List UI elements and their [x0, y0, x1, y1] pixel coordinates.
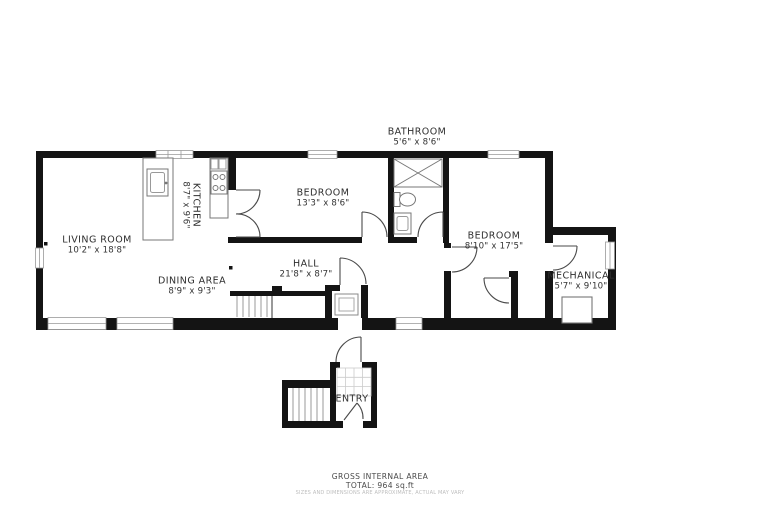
window-mechanical-right	[606, 242, 615, 269]
room-label-bathroom: BATHROOM 5'6" x 8'6"	[388, 127, 447, 148]
door-entry-inner	[336, 337, 361, 362]
door-kitchen-double	[236, 190, 260, 237]
stairs-entry	[293, 388, 323, 421]
room-label-entry: ENTRY	[336, 394, 369, 405]
window-living-bottom-2	[117, 318, 173, 330]
room-name: BATHROOM	[388, 127, 447, 138]
room-dims: 5'6" x 8'6"	[388, 138, 447, 148]
room-name: LIVING ROOM	[62, 235, 132, 246]
room-dims: 8'9" x 9'3"	[158, 287, 226, 297]
window-bedroom1	[308, 151, 337, 159]
bathroom-fixtures	[394, 159, 442, 234]
floor-plan: BATHROOM 5'6" x 8'6" LIVING ROOM 10'2" x…	[0, 0, 760, 505]
room-name: KITCHEN	[191, 181, 202, 228]
window-living-bottom-1	[48, 318, 106, 330]
room-name: HALL	[280, 259, 333, 270]
total-area-value: TOTAL: 964 sq.ft	[296, 482, 465, 491]
room-dims: 13'3" x 8'6"	[297, 199, 350, 209]
stairs-basement	[237, 296, 272, 318]
window-kitchen	[156, 151, 193, 159]
room-dims: 10'2" x 18'8"	[62, 246, 132, 256]
door-bedroom2-closet	[484, 278, 509, 303]
room-name: ENTRY	[336, 394, 369, 405]
window-hall-bottom	[396, 318, 422, 330]
room-dims: 21'8" x 8'7"	[280, 270, 333, 280]
room-label-living-room: LIVING ROOM 10'2" x 18'8"	[62, 235, 132, 256]
room-dims: 8'7" x 9'6"	[181, 181, 191, 228]
room-name: BEDROOM	[297, 188, 350, 199]
kitchen-cabinet	[219, 159, 226, 169]
entry-tile-grid	[337, 368, 371, 396]
room-label-kitchen: KITCHEN 8'7" x 9'6"	[181, 181, 202, 228]
room-name: BEDROOM	[465, 231, 524, 242]
room-label-hall: HALL 21'8" x 8'7"	[280, 259, 333, 280]
footer-area-summary: GROSS INTERNAL AREA TOTAL: 964 sq.ft SIZ…	[296, 473, 465, 497]
room-label-bedroom-2: BEDROOM 8'10" x 17'5"	[465, 231, 524, 252]
room-label-bedroom-1: BEDROOM 13'3" x 8'6"	[297, 188, 350, 209]
stove	[211, 171, 227, 194]
disclaimer-text: SIZES AND DIMENSIONS ARE APPROXIMATE, AC…	[296, 490, 465, 497]
shower	[394, 159, 442, 187]
door-hall-closet	[340, 258, 366, 285]
door-mechanical	[553, 246, 577, 270]
hall-closet-appliance	[335, 294, 358, 315]
room-label-dining-area: DINING AREA 8'9" x 9'3"	[158, 276, 226, 297]
window-bedroom2	[488, 151, 519, 159]
door-bedroom1	[362, 212, 387, 237]
toilet	[394, 193, 416, 207]
room-dims: 8'10" x 17'5"	[465, 242, 524, 252]
room-name: MECHANICAL	[547, 271, 614, 282]
door-entry-front	[344, 403, 363, 420]
window-living-left	[36, 248, 44, 268]
kitchen-cabinet	[211, 159, 218, 169]
sink-vanity	[394, 213, 411, 234]
furnace	[562, 297, 592, 323]
room-dims: 5'7" x 9'10"	[547, 282, 614, 292]
door-bathroom	[418, 212, 443, 237]
room-name: DINING AREA	[158, 276, 226, 287]
room-label-mechanical: MECHANICAL 5'7" x 9'10"	[547, 271, 614, 292]
